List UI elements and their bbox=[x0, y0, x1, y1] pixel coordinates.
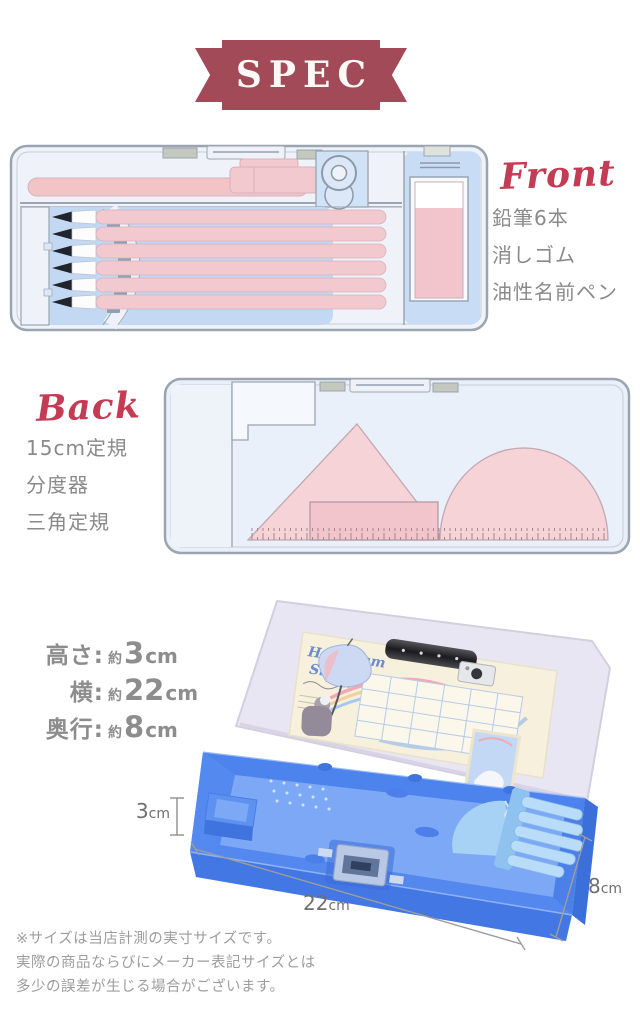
measure-depth-unit: cm bbox=[601, 881, 622, 897]
eraser-compartment bbox=[404, 146, 480, 325]
measure-label-height: 3cm bbox=[118, 799, 170, 823]
disclaimer-line: 実際の商品ならびにメーカー表記サイズとは bbox=[16, 951, 316, 975]
pencil bbox=[52, 210, 386, 224]
front-item: 油性名前ペン bbox=[492, 274, 618, 311]
side-strip bbox=[21, 207, 49, 325]
back-item: 分度器 bbox=[26, 467, 128, 504]
disclaimer-line: 多少の誤差が生じる場合がございます。 bbox=[16, 975, 316, 999]
spec-ribbon: SPEC bbox=[195, 40, 407, 110]
size-label: 奥行: bbox=[22, 710, 104, 744]
pencil bbox=[52, 227, 386, 241]
front-item: 鉛筆6本 bbox=[492, 200, 618, 237]
disclaimer-line: ※サイズは当店計測の実寸サイズです。 bbox=[16, 927, 316, 951]
back-label: Back bbox=[35, 384, 141, 430]
size-approx: 約 bbox=[108, 648, 122, 668]
product-spec-page: SPEC bbox=[0, 0, 640, 1013]
size-approx: 約 bbox=[108, 685, 122, 705]
measure-label-depth: 8cm bbox=[588, 874, 622, 898]
front-illustration bbox=[8, 143, 490, 333]
size-label: 高さ: bbox=[22, 636, 104, 670]
measure-width-value: 22 bbox=[303, 891, 328, 915]
back-item: 三角定規 bbox=[26, 504, 128, 541]
measure-height-unit: cm bbox=[149, 806, 170, 822]
pencil bbox=[52, 295, 386, 309]
pencil bbox=[52, 244, 386, 258]
back-item: 15cm定規 bbox=[26, 430, 128, 467]
back-item-list: 15cm定規 分度器 三角定規 bbox=[26, 430, 128, 541]
pencil bbox=[52, 278, 386, 292]
sharpener bbox=[316, 151, 368, 209]
size-disclaimer: ※サイズは当店計測の実寸サイズです。 実際の商品ならびにメーカー表記サイズとは … bbox=[16, 927, 316, 999]
front-label: Front bbox=[499, 152, 616, 198]
front-item: 消しゴム bbox=[492, 237, 618, 274]
size-value: 22 bbox=[124, 673, 164, 707]
product-photo: Hologram Sky bbox=[165, 585, 640, 970]
inner-box bbox=[204, 793, 257, 841]
size-label: 横: bbox=[22, 673, 104, 707]
measure-height-value: 3 bbox=[136, 799, 149, 823]
front-item-list: 鉛筆6本 消しゴム 油性名前ペン bbox=[492, 200, 618, 311]
size-value: 8 bbox=[124, 710, 144, 744]
dimension-line-height bbox=[170, 798, 184, 835]
pencil bbox=[52, 261, 386, 275]
measure-width-unit: cm bbox=[328, 898, 349, 914]
back-illustration bbox=[162, 376, 632, 558]
spec-ribbon-label: SPEC bbox=[222, 40, 380, 110]
measure-depth-value: 8 bbox=[588, 874, 601, 898]
measure-label-width: 22cm bbox=[303, 891, 350, 915]
eraser bbox=[415, 182, 463, 298]
size-approx: 約 bbox=[108, 722, 122, 742]
ruler-ticks bbox=[250, 528, 608, 540]
size-value: 3 bbox=[124, 636, 144, 670]
